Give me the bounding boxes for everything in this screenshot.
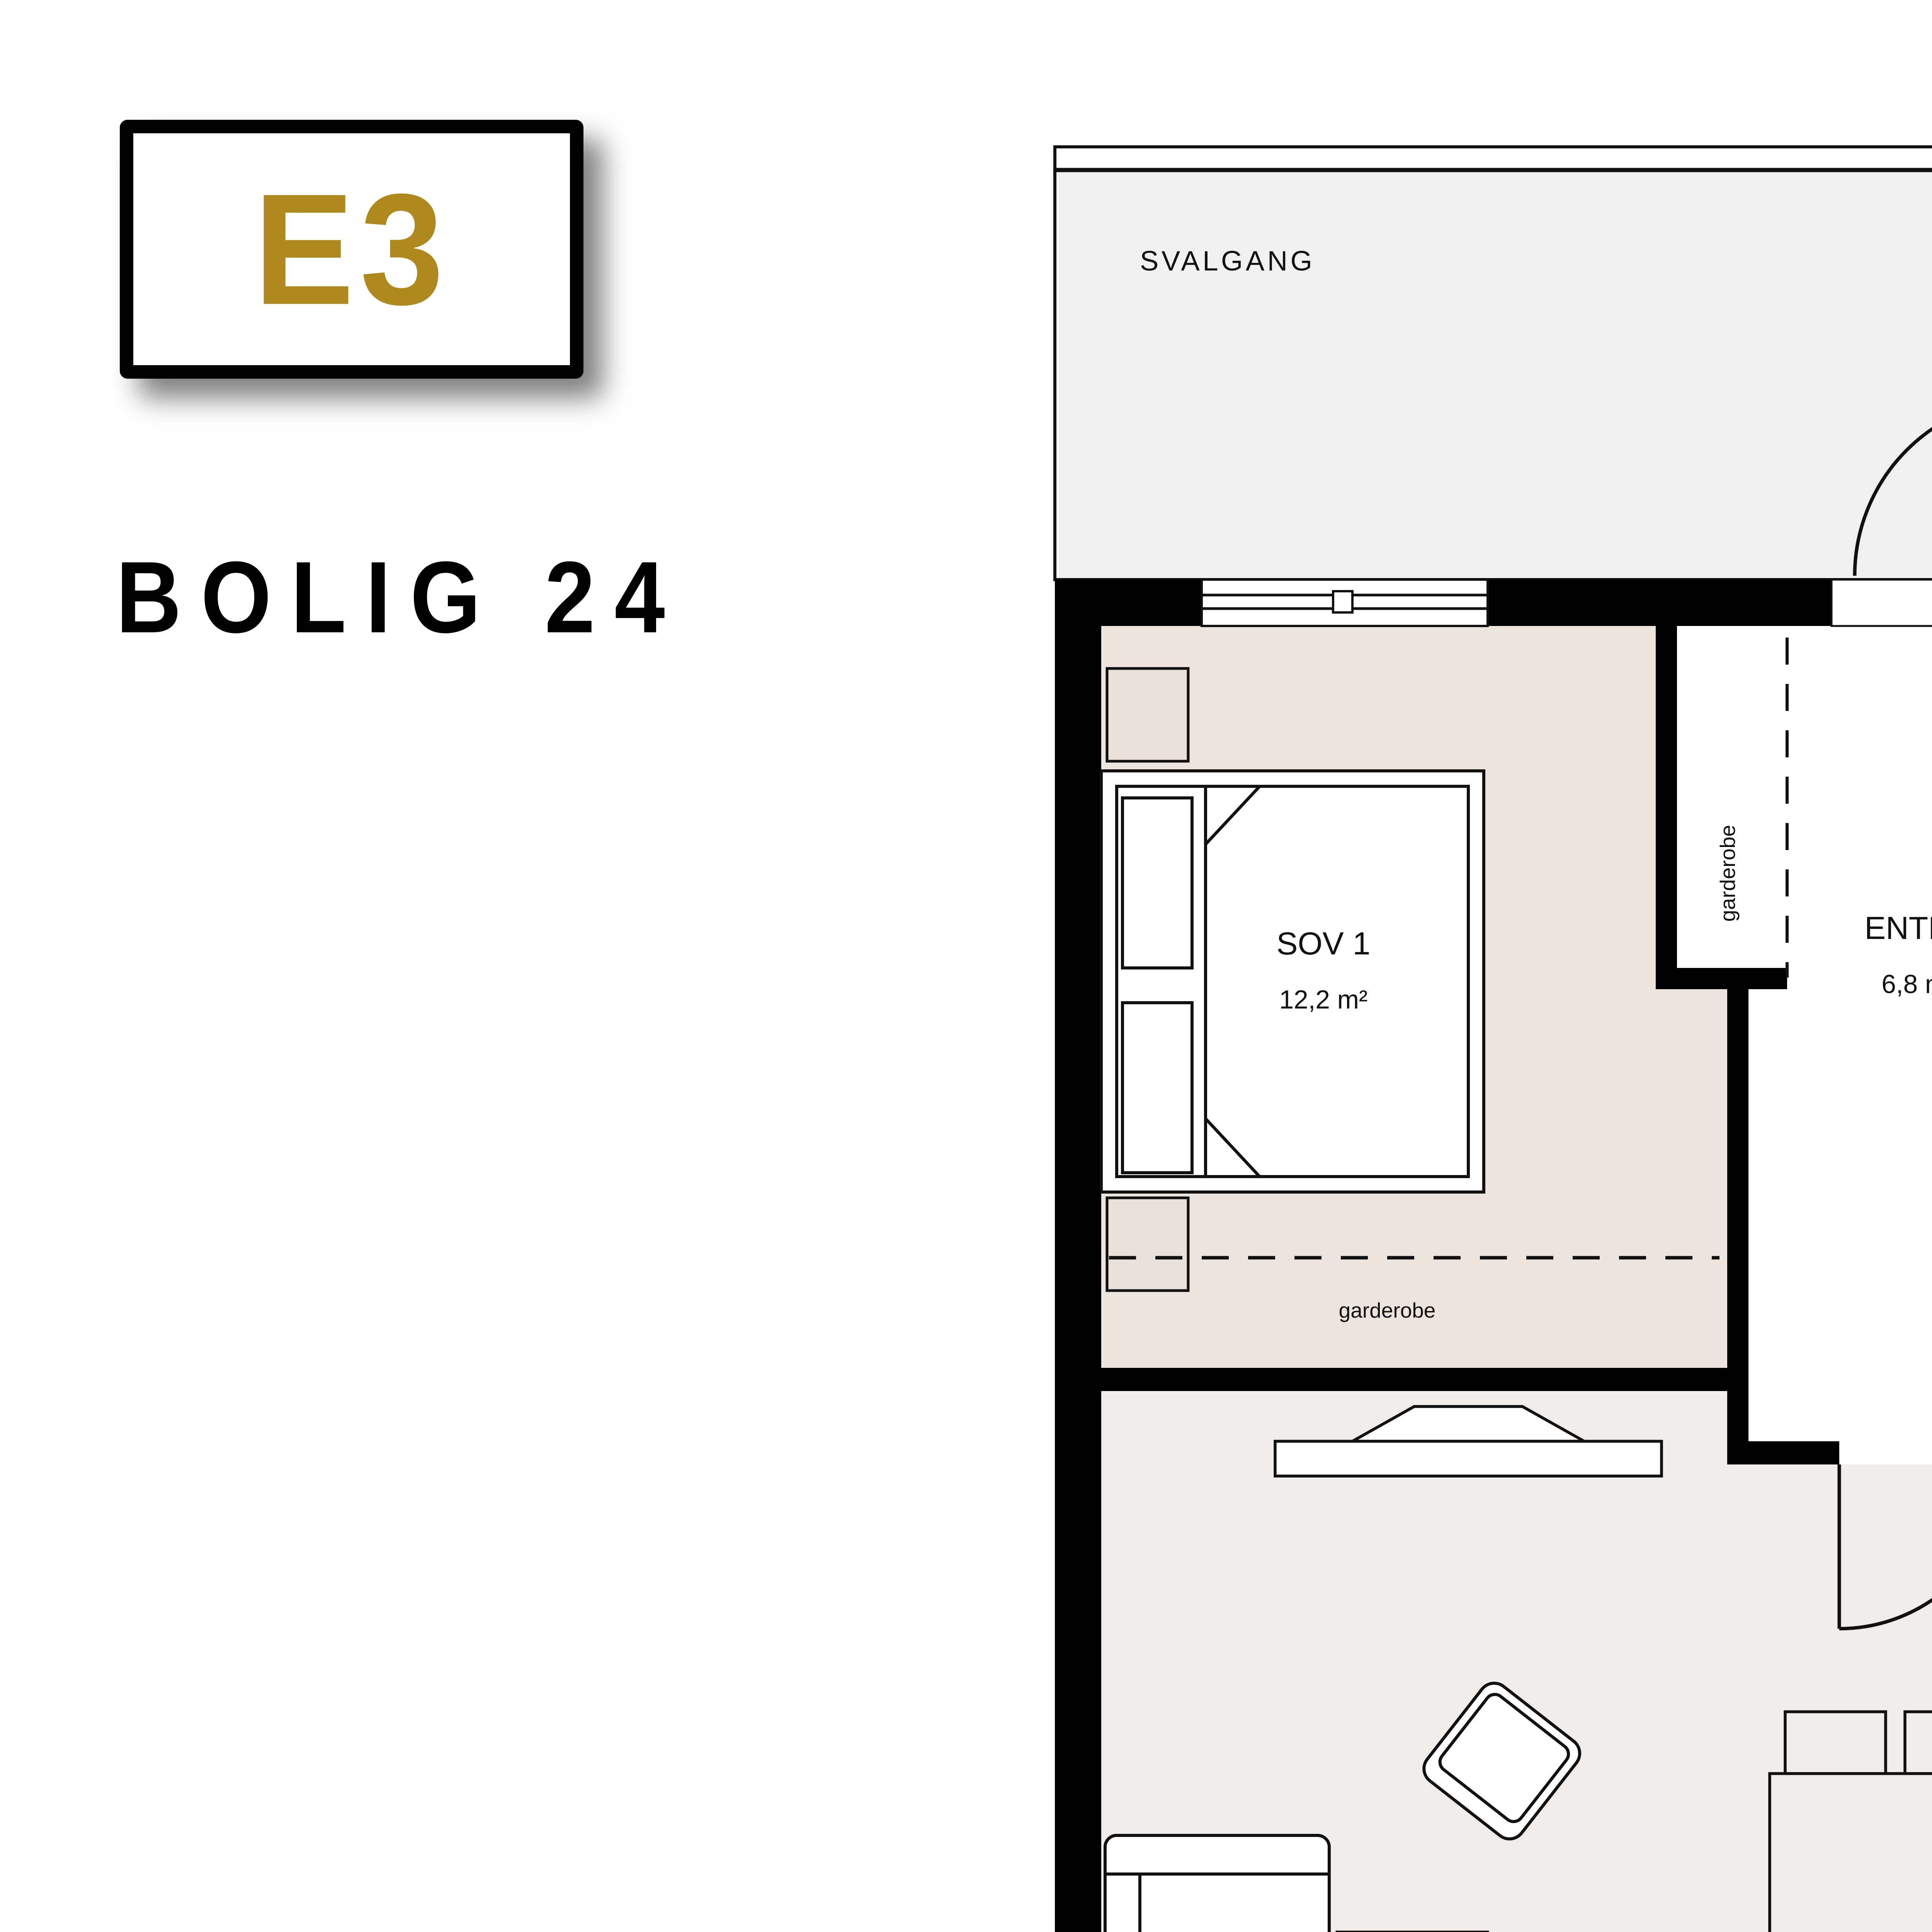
entre-area-label: 6,8 m² bbox=[1881, 970, 1932, 999]
dining-set-icon bbox=[1770, 1712, 1932, 1932]
sov1-nightstand-icon bbox=[1107, 1198, 1188, 1291]
sov1-area-label: 12,2 m² bbox=[1279, 985, 1368, 1014]
entre-name-label: ENTRÈ bbox=[1864, 910, 1932, 946]
unit-badge-label: E3 bbox=[253, 157, 449, 342]
sov1-bed-icon bbox=[1101, 771, 1484, 1192]
page-title: BOLIG 24 bbox=[116, 537, 684, 656]
entre-corridor-floor bbox=[1748, 626, 1932, 1464]
wall-closet-bottom bbox=[1656, 968, 1787, 989]
sov1-garderobe-label: garderobe bbox=[1339, 1298, 1436, 1322]
wall-sov1-corridor bbox=[1727, 989, 1748, 1464]
svalgang-floor bbox=[1059, 170, 1932, 578]
window-sov1-icon bbox=[1202, 580, 1488, 626]
sov1-name-label: SOV 1 bbox=[1276, 926, 1370, 961]
svalgang: SVALGANG bbox=[1055, 147, 1932, 580]
entry-door-opening bbox=[1832, 580, 1932, 626]
wall-sov1-closet bbox=[1656, 626, 1677, 989]
wall-sov1-stue bbox=[1101, 1368, 1748, 1391]
sov1-nightstand-icon bbox=[1107, 668, 1188, 761]
page: SVALGANG bbox=[0, 0, 1932, 1932]
svalgang-label: SVALGANG bbox=[1140, 245, 1315, 277]
unit-badge: E3 bbox=[120, 120, 583, 379]
closet-garderobe-label: garderobe bbox=[1716, 825, 1740, 922]
wall-corridor-stub bbox=[1727, 1441, 1839, 1464]
wall-left bbox=[1055, 580, 1101, 1932]
